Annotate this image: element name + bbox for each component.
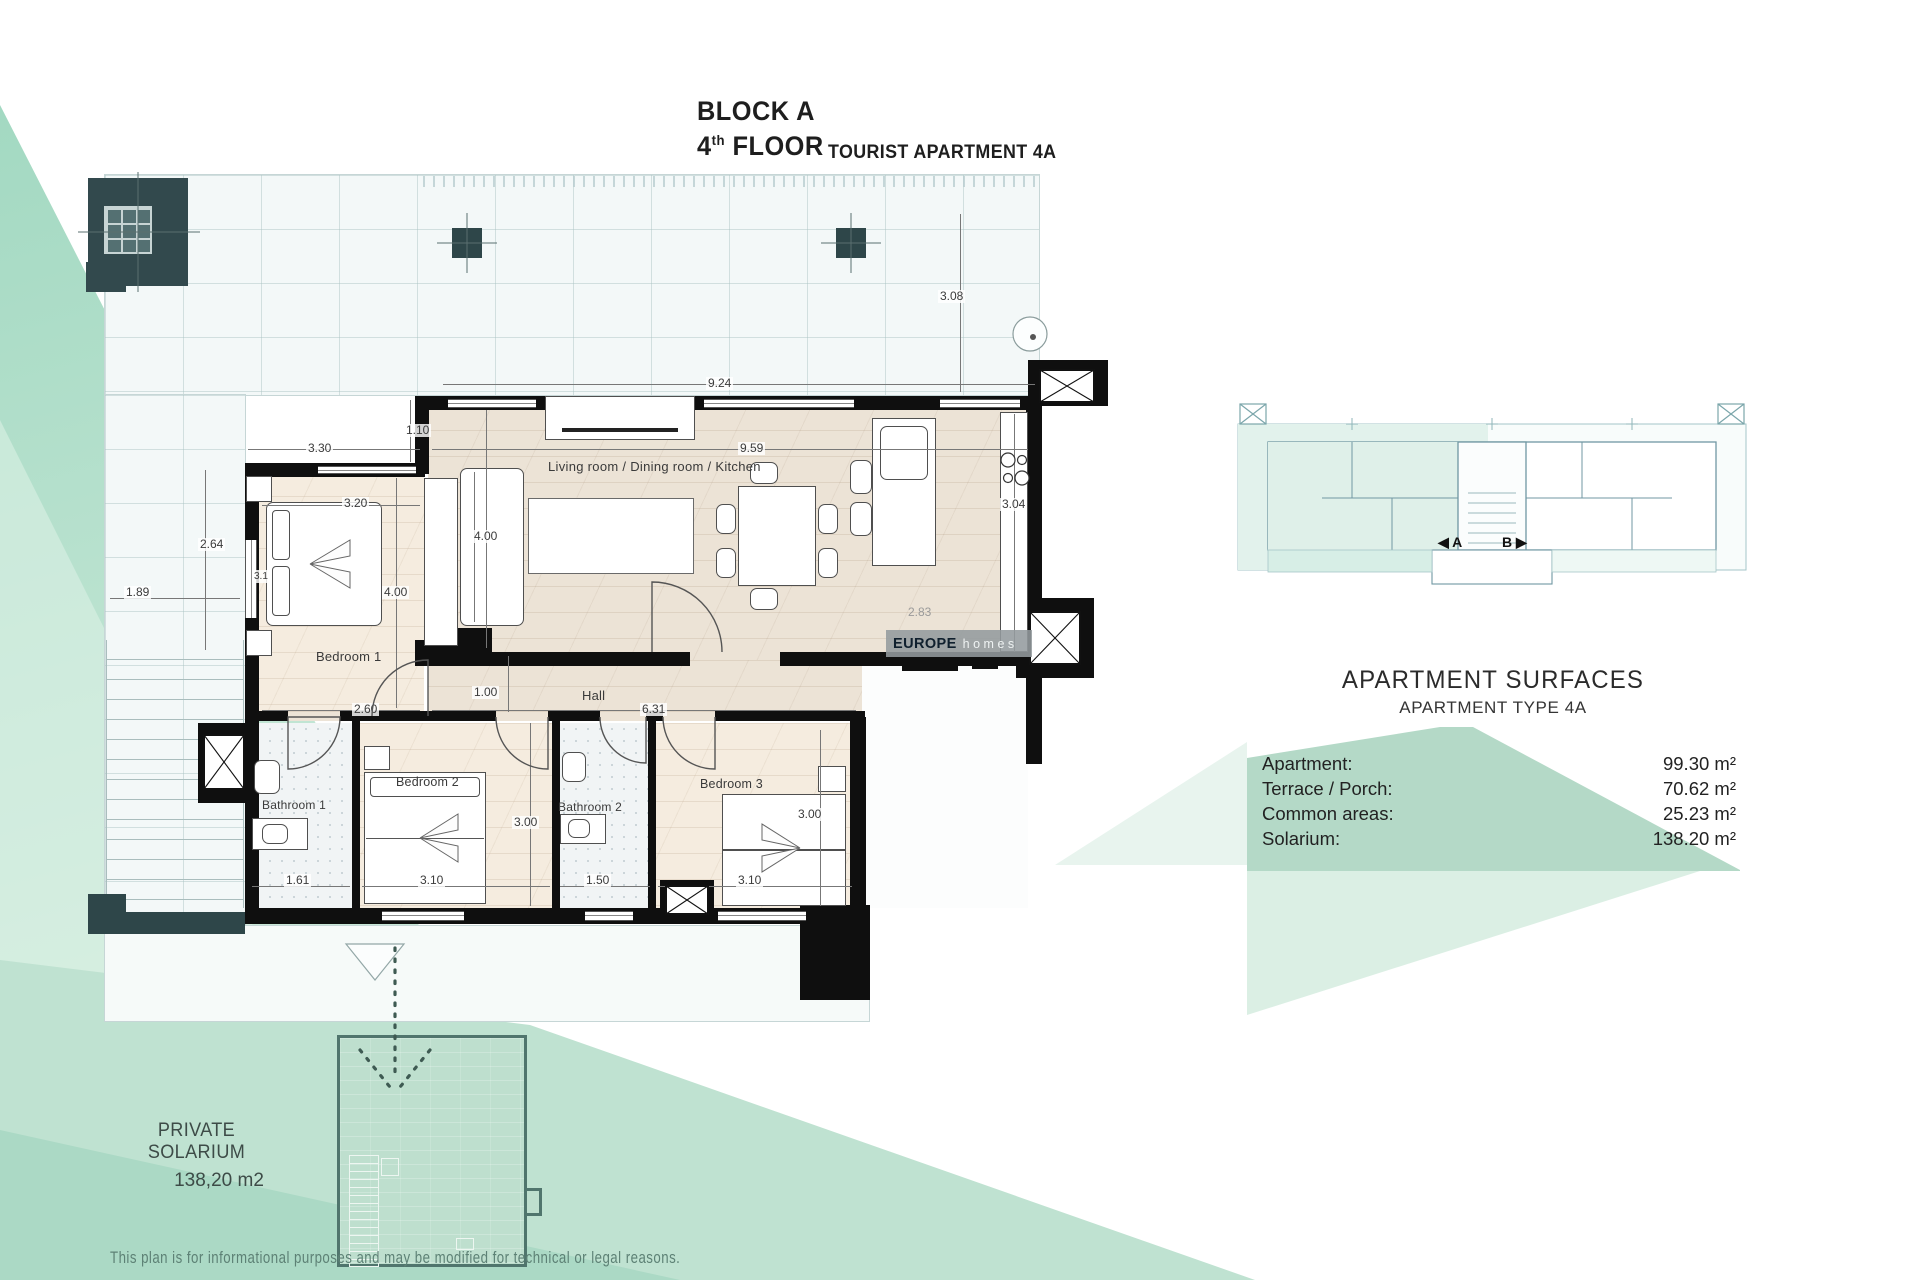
wall-left bbox=[245, 463, 259, 924]
floor-landing bbox=[862, 660, 1028, 908]
dim-label: 4.00 bbox=[382, 586, 409, 599]
dim-label: 1.89 bbox=[124, 586, 151, 599]
floor-overview-plan bbox=[1232, 398, 1752, 642]
dining-table bbox=[738, 486, 816, 586]
overview-label-b: B ▶ bbox=[1502, 534, 1527, 551]
surface-value: 25.23 m² bbox=[1663, 803, 1736, 828]
title-block-a: BLOCK A bbox=[697, 96, 824, 127]
wardrobe-bedroom1 bbox=[424, 478, 458, 646]
sofa-back-line bbox=[474, 472, 475, 622]
floor-ordinal: th bbox=[712, 132, 725, 148]
dim-line bbox=[508, 656, 509, 712]
chair-bottom bbox=[750, 588, 778, 610]
room-label-hall: Hall bbox=[582, 688, 605, 703]
overview-inner-walls bbox=[1322, 442, 1672, 550]
europe-homes-logo: EUROPE homes bbox=[886, 630, 1032, 657]
floor-word: FLOOR bbox=[732, 131, 823, 161]
dim-label: 3.10 bbox=[736, 874, 763, 887]
window-bathroom2 bbox=[585, 911, 633, 921]
dim-label: 1.50 bbox=[584, 874, 611, 887]
surfaces-row-apartment: Apartment: 99.30 m² bbox=[1262, 753, 1736, 778]
solarium-note: PRIVATE SOLARIUM 138,20 m2 bbox=[104, 1120, 289, 1192]
dim-label: 2.60 bbox=[352, 703, 379, 716]
dim-label: 3.20 bbox=[342, 497, 369, 510]
dim-label: 3.10 bbox=[418, 874, 445, 887]
chair-left-1 bbox=[716, 504, 736, 534]
bath1-toilet bbox=[254, 760, 280, 794]
bed2-nightstand bbox=[364, 746, 390, 770]
bath1-sink-bowl bbox=[262, 824, 288, 844]
surfaces-row-solarium: Solarium: 138.20 m² bbox=[1262, 828, 1736, 853]
logo-light-text: homes bbox=[963, 637, 1018, 651]
surface-value: 99.30 m² bbox=[1663, 753, 1736, 778]
surfaces-title: APARTMENT SURFACES bbox=[1253, 666, 1733, 695]
floor-number: 4 bbox=[697, 131, 712, 161]
bed1-nightstand-2 bbox=[246, 630, 272, 656]
dim-label: 3.04 bbox=[1000, 498, 1027, 511]
chair-right-1 bbox=[818, 504, 838, 534]
bed1-nightstand-1 bbox=[246, 476, 272, 502]
surface-label: Solarium: bbox=[1262, 828, 1340, 853]
surfaces-heading: APARTMENT SURFACES APARTMENT TYPE 4A bbox=[1243, 666, 1743, 718]
bed1-pillow-2 bbox=[272, 566, 290, 616]
bath2-toilet bbox=[562, 752, 586, 782]
solarium-thumb-bump bbox=[524, 1188, 542, 1216]
window-bedroom3 bbox=[718, 911, 806, 921]
bed2-mid-line bbox=[366, 838, 484, 839]
logo-bold-text: EUROPE bbox=[893, 636, 957, 652]
dim-line bbox=[960, 214, 961, 392]
wall-bath2-bed3 bbox=[648, 717, 656, 908]
title-block: BLOCK A 4th FLOOR bbox=[697, 96, 824, 162]
bath2-sink-bowl bbox=[568, 819, 590, 838]
dim-label: 2.64 bbox=[198, 538, 225, 551]
terrace-drain-1 bbox=[452, 228, 482, 258]
overview-ticks bbox=[1346, 418, 1638, 430]
dim-label: 9.24 bbox=[706, 377, 733, 390]
surfaces-table: Apartment: 99.30 m² Terrace / Porch: 70.… bbox=[1262, 753, 1736, 853]
window-kitchen-door bbox=[940, 399, 1020, 408]
tv-niche bbox=[545, 396, 695, 440]
dim-label: 6.31 bbox=[640, 703, 667, 716]
dim-line bbox=[362, 886, 550, 887]
disclaimer-text: This plan is for informational purposes … bbox=[110, 1248, 680, 1268]
surfaces-row-common: Common areas: 25.23 m² bbox=[1262, 803, 1736, 828]
solar-unit-grid bbox=[104, 206, 152, 254]
wall-bath1-bed2 bbox=[352, 717, 360, 908]
dim-label: 3.1 bbox=[252, 570, 270, 583]
wall-logo-2 bbox=[972, 659, 998, 669]
dim-label: 3.00 bbox=[512, 816, 539, 829]
surfaces-row-terrace: Terrace / Porch: 70.62 m² bbox=[1262, 778, 1736, 803]
surface-value: 138.20 m² bbox=[1653, 828, 1736, 853]
tv-icon bbox=[562, 428, 678, 432]
dim-label: 1.61 bbox=[284, 874, 311, 887]
terrace-top bbox=[104, 174, 1040, 396]
wall-bedroom3-right bbox=[850, 717, 866, 922]
surface-label: Common areas: bbox=[1262, 803, 1394, 828]
dim-line bbox=[432, 449, 1028, 450]
bed3-nightstand bbox=[818, 766, 846, 792]
solarium-rail bbox=[381, 1158, 399, 1176]
dim-line bbox=[262, 710, 420, 711]
dim-label: 3.00 bbox=[796, 808, 823, 821]
solarium-wall-bump bbox=[88, 894, 126, 934]
solarium-area: 138,20 m2 bbox=[104, 1170, 289, 1192]
rug-daybed bbox=[528, 498, 694, 574]
bed1-pillow-1 bbox=[272, 510, 290, 560]
room-label-living: Living room / Dining room / Kitchen bbox=[548, 459, 761, 474]
wall-block-bottom-right bbox=[800, 905, 870, 1000]
room-label-bedroom1: Bedroom 1 bbox=[316, 649, 381, 664]
window-living-2 bbox=[704, 399, 854, 408]
overview-label-a: ◀ A bbox=[1438, 534, 1462, 551]
door-gap-bedroom2 bbox=[496, 711, 548, 721]
stool-1 bbox=[850, 460, 872, 494]
surface-label: Terrace / Porch: bbox=[1262, 778, 1393, 803]
overview-shafts bbox=[1240, 404, 1744, 424]
door-gap-bedroom3 bbox=[663, 711, 715, 721]
solarium-label: PRIVATE SOLARIUM bbox=[109, 1120, 285, 1164]
dim-label: 9.59 bbox=[738, 442, 765, 455]
room-label-bathroom2: Bathroom 2 bbox=[558, 800, 622, 814]
chair-left-2 bbox=[716, 548, 736, 578]
floor-plan-page: 9.24 3.08 3.30 9.59 1.10 3.20 2.64 1.89 … bbox=[0, 0, 1920, 1280]
pergola-strip bbox=[423, 176, 1040, 187]
dim-line bbox=[443, 384, 1035, 385]
solarium-thumbnail bbox=[337, 1035, 527, 1267]
surface-label: Apartment: bbox=[1262, 753, 1353, 778]
window-living-1 bbox=[448, 399, 536, 408]
stool-2 bbox=[850, 502, 872, 536]
dim-label: 3.30 bbox=[306, 442, 333, 455]
solarium-wall-dark bbox=[120, 912, 245, 934]
solar-unit-small bbox=[86, 262, 126, 292]
dim-label: 4.00 bbox=[472, 530, 499, 543]
wall-logo-1 bbox=[902, 657, 958, 671]
dim-label: 2.83 bbox=[906, 606, 933, 619]
dim-line bbox=[205, 470, 206, 650]
title-floor: 4th FLOOR bbox=[697, 131, 824, 162]
window-bedroom2 bbox=[382, 911, 464, 921]
dim-line bbox=[1014, 414, 1015, 652]
dim-line bbox=[248, 449, 420, 450]
wall-shaft-top-right bbox=[1028, 360, 1108, 406]
room-label-bedroom2: Bedroom 2 bbox=[396, 775, 459, 789]
bed3-single-1 bbox=[722, 794, 846, 850]
island-sink bbox=[880, 426, 928, 480]
door-gap-bathroom1 bbox=[288, 711, 340, 721]
surfaces-subtitle: APARTMENT TYPE 4A bbox=[1243, 698, 1743, 718]
dim-label: 3.08 bbox=[938, 290, 965, 303]
chair-right-2 bbox=[818, 548, 838, 578]
room-label-bathroom1: Bathroom 1 bbox=[262, 798, 326, 812]
terrace-lower-strip bbox=[104, 925, 870, 1022]
dim-label: 1.00 bbox=[472, 686, 499, 699]
dim-label: 1.10 bbox=[404, 424, 431, 437]
surface-value: 70.62 m² bbox=[1663, 778, 1736, 803]
room-label-bedroom3: Bedroom 3 bbox=[700, 777, 763, 791]
terrace-drain-2 bbox=[836, 228, 866, 258]
wall-shaft-left bbox=[198, 723, 248, 803]
title-apartment: TOURIST APARTMENT 4A bbox=[828, 142, 1056, 164]
window-bedroom1-top bbox=[318, 466, 416, 474]
sofa bbox=[460, 468, 524, 626]
